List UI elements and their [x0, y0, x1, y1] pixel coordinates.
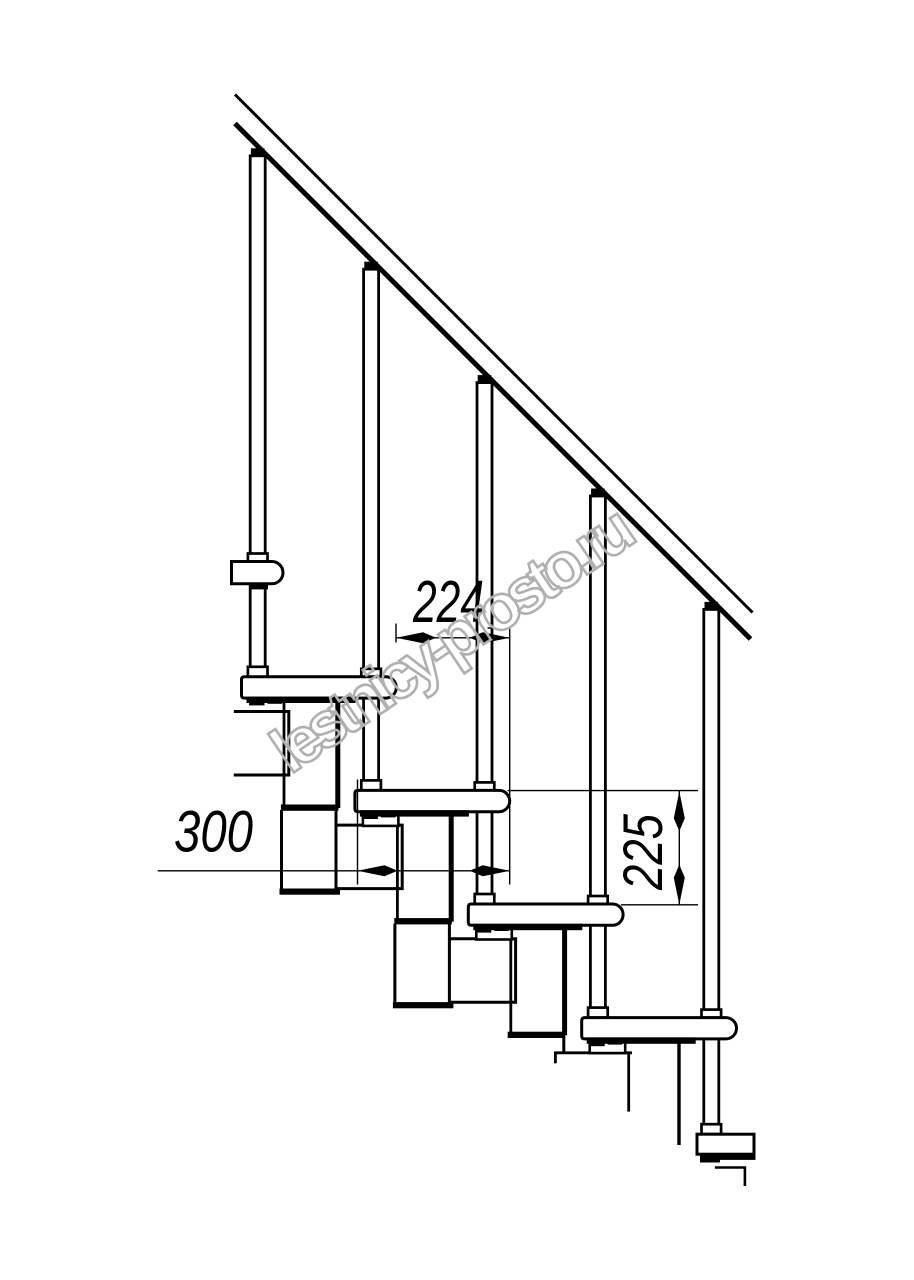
svg-text:225: 225	[611, 813, 674, 891]
svg-text:300: 300	[174, 800, 253, 865]
